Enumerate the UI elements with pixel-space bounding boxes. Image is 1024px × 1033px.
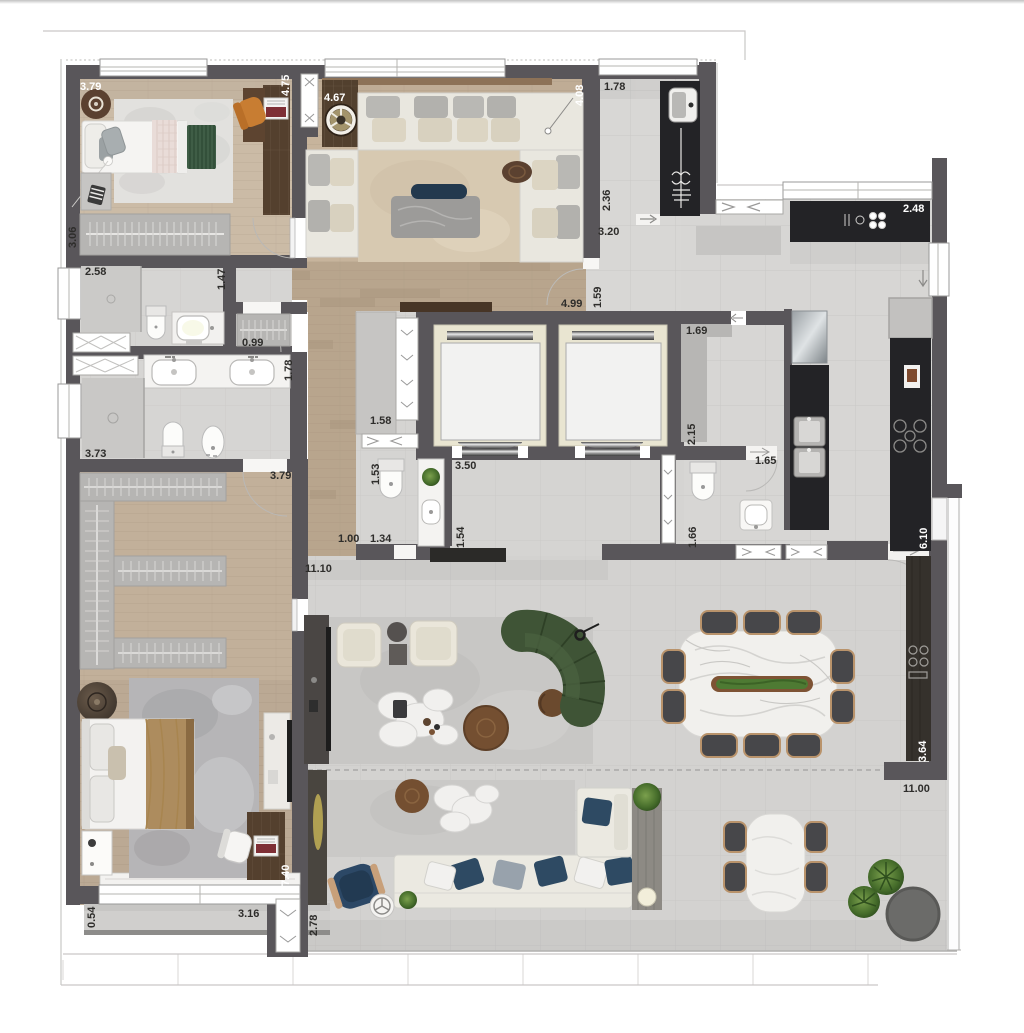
svg-text:3.64: 3.64 xyxy=(917,740,929,762)
svg-text:1.34: 1.34 xyxy=(370,533,392,545)
svg-text:7.40: 7.40 xyxy=(280,865,292,886)
svg-text:1.69: 1.69 xyxy=(686,325,707,337)
svg-text:1.65: 1.65 xyxy=(755,455,776,467)
svg-text:2.58: 2.58 xyxy=(85,266,106,278)
svg-text:11.10: 11.10 xyxy=(305,563,332,575)
svg-text:1.58: 1.58 xyxy=(370,415,391,427)
svg-text:2.78: 2.78 xyxy=(308,915,320,936)
svg-text:3.16: 3.16 xyxy=(238,908,259,920)
svg-text:2.36: 2.36 xyxy=(601,190,613,211)
svg-text:3.50: 3.50 xyxy=(455,460,476,472)
svg-text:11.00: 11.00 xyxy=(903,783,930,795)
svg-text:3.20: 3.20 xyxy=(598,226,619,238)
svg-text:4.75: 4.75 xyxy=(280,75,292,96)
svg-text:0.99: 0.99 xyxy=(242,337,263,349)
svg-text:0.54: 0.54 xyxy=(86,906,98,928)
svg-text:1.78: 1.78 xyxy=(283,360,295,381)
svg-text:1.53: 1.53 xyxy=(370,464,382,485)
svg-text:3.79: 3.79 xyxy=(80,81,101,93)
svg-text:2.15: 2.15 xyxy=(686,424,698,445)
svg-text:6.10: 6.10 xyxy=(918,528,930,549)
svg-text:4.67: 4.67 xyxy=(324,92,345,104)
svg-text:3.06: 3.06 xyxy=(67,227,79,248)
svg-text:1.54: 1.54 xyxy=(455,526,467,548)
svg-text:4.08: 4.08 xyxy=(574,85,586,106)
svg-text:2.48: 2.48 xyxy=(903,203,924,215)
svg-text:4.99: 4.99 xyxy=(561,298,582,310)
svg-text:3.73: 3.73 xyxy=(85,448,106,460)
svg-text:1.59: 1.59 xyxy=(592,287,604,308)
svg-text:1.66: 1.66 xyxy=(687,527,699,548)
svg-text:1.47: 1.47 xyxy=(216,269,228,290)
svg-text:1.00: 1.00 xyxy=(338,533,359,545)
svg-text:1.78: 1.78 xyxy=(604,81,625,93)
svg-text:3.79: 3.79 xyxy=(270,470,291,482)
